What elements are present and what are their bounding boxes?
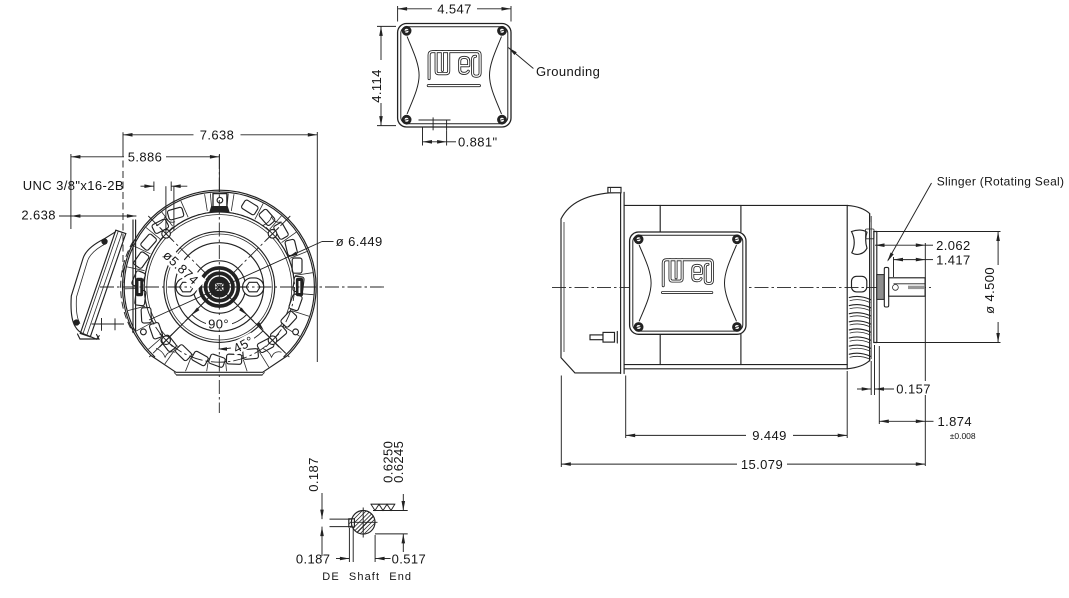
svg-text:4.547: 4.547 xyxy=(437,2,472,17)
svg-text:5.886: 5.886 xyxy=(128,150,163,165)
svg-text:9.449: 9.449 xyxy=(752,428,787,443)
svg-text:0.6245: 0.6245 xyxy=(391,441,406,483)
svg-text:Grounding: Grounding xyxy=(536,64,600,79)
svg-text:DE Shaft End: DE Shaft End xyxy=(322,571,412,583)
svg-text:2.062: 2.062 xyxy=(936,238,971,253)
svg-text:90°: 90° xyxy=(208,317,229,332)
svg-text:4.114: 4.114 xyxy=(369,69,384,103)
svg-text:0.187: 0.187 xyxy=(306,457,321,492)
svg-text:Slinger (Rotating Seal): Slinger (Rotating Seal) xyxy=(937,175,1065,189)
svg-text:±0.008: ±0.008 xyxy=(950,431,976,441)
svg-text:1.874: 1.874 xyxy=(938,414,973,429)
svg-text:15.079: 15.079 xyxy=(741,457,783,472)
svg-text:ø 4.500: ø 4.500 xyxy=(982,267,997,314)
svg-text:1.417: 1.417 xyxy=(936,253,971,268)
svg-text:0.517: 0.517 xyxy=(392,551,427,566)
svg-text:0.187: 0.187 xyxy=(296,551,331,566)
svg-text:2.638: 2.638 xyxy=(21,208,56,223)
svg-text:7.638: 7.638 xyxy=(200,128,235,143)
svg-text:ø 6.449: ø 6.449 xyxy=(336,234,383,249)
svg-text:UNC 3/8"x16-2B: UNC 3/8"x16-2B xyxy=(23,178,124,193)
svg-text:0.157: 0.157 xyxy=(896,381,931,396)
svg-text:0.881": 0.881" xyxy=(458,134,498,149)
